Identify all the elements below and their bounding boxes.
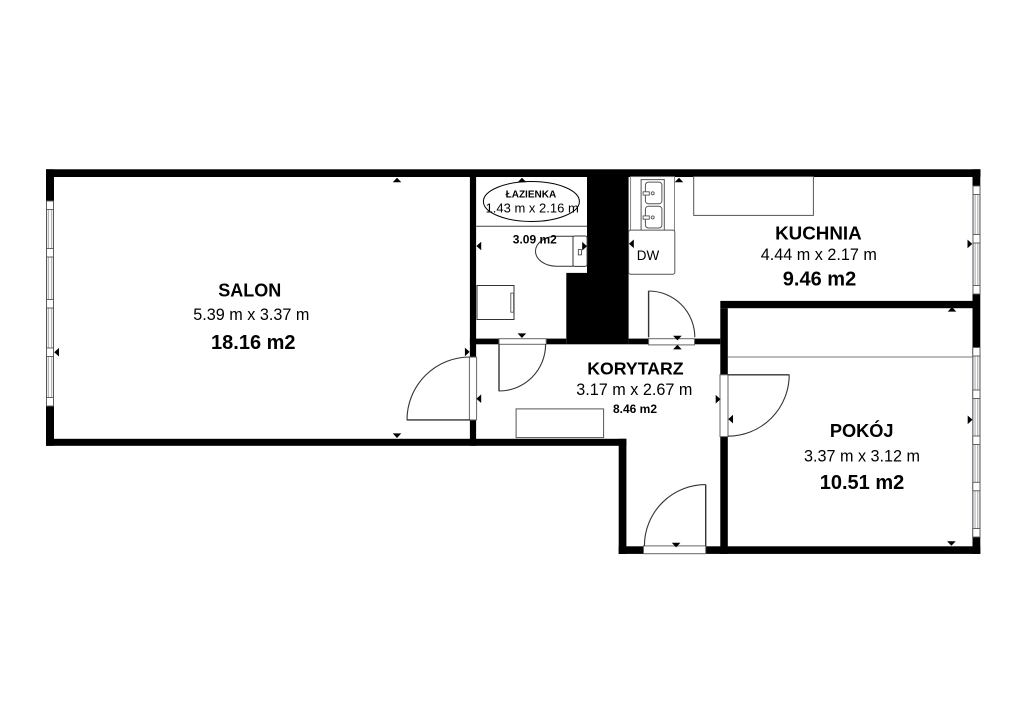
svg-text:SALON: SALON — [218, 280, 281, 300]
svg-text:KUCHNIA: KUCHNIA — [775, 223, 862, 244]
svg-text:3.37 m x 3.12 m: 3.37 m x 3.12 m — [804, 447, 920, 465]
svg-text:18.16 m2: 18.16 m2 — [211, 332, 296, 354]
svg-text:9.46 m2: 9.46 m2 — [783, 269, 856, 291]
svg-text:1.43 m x 2.16 m: 1.43 m x 2.16 m — [486, 200, 579, 215]
svg-text:KORYTARZ: KORYTARZ — [587, 359, 683, 379]
svg-text:ŁAZIENKA: ŁAZIENKA — [506, 189, 557, 200]
svg-text:3.09 m2: 3.09 m2 — [513, 233, 557, 247]
svg-text:3.17 m x 2.67 m: 3.17 m x 2.67 m — [576, 381, 692, 399]
svg-text:DW: DW — [637, 248, 660, 263]
svg-text:8.46 m2: 8.46 m2 — [613, 402, 657, 416]
svg-text:5.39 m x 3.37 m: 5.39 m x 3.37 m — [193, 306, 309, 324]
svg-text:4.44 m x 2.17 m: 4.44 m x 2.17 m — [761, 246, 877, 264]
svg-text:POKÓJ: POKÓJ — [830, 420, 894, 441]
svg-text:10.51 m2: 10.51 m2 — [820, 472, 905, 494]
